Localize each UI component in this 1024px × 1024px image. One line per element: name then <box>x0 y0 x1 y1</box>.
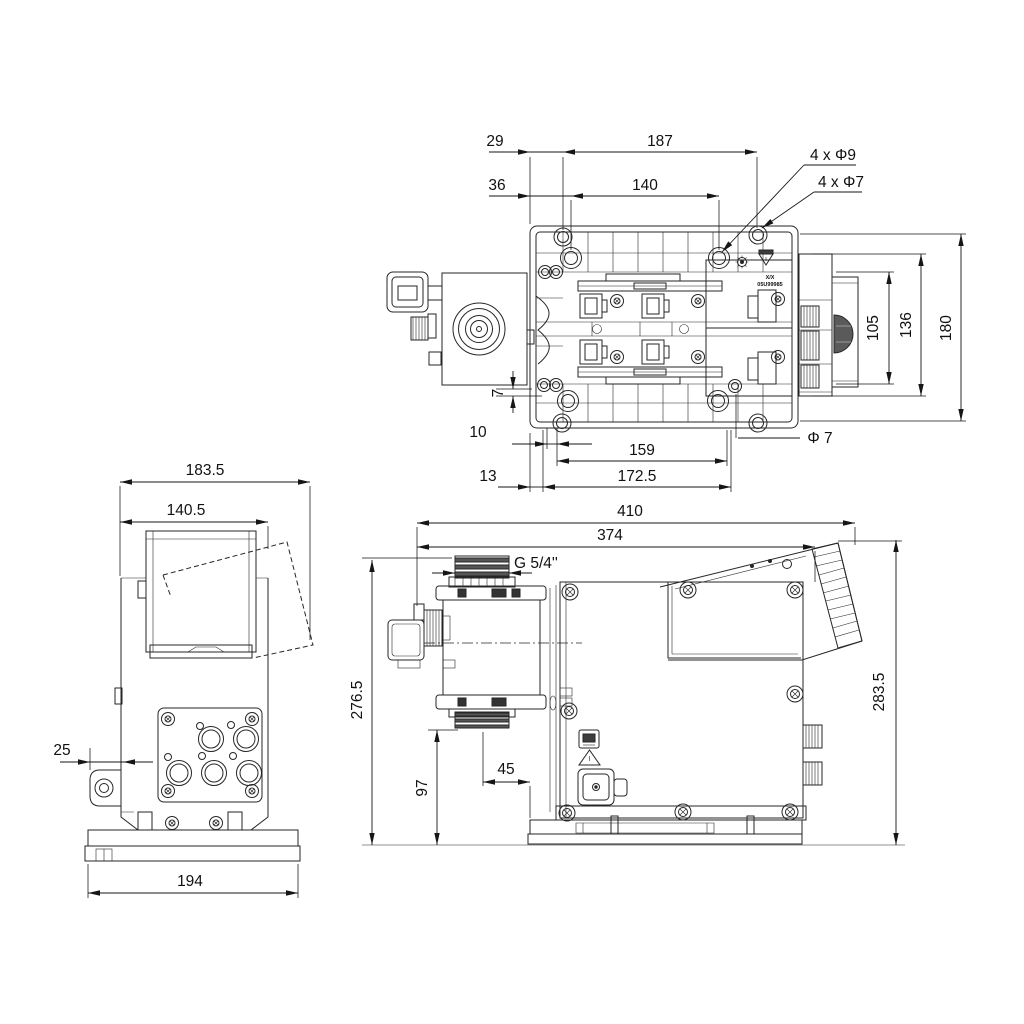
screw-icon <box>162 785 175 798</box>
dim-180: 180 <box>938 315 955 341</box>
screw-icon <box>561 703 577 719</box>
dim-283-5: 283.5 <box>871 673 888 712</box>
electrical-connector <box>578 769 627 805</box>
screw-icon <box>246 713 259 726</box>
valve-circle-top <box>453 303 505 355</box>
dim-187: 187 <box>647 133 673 150</box>
thread-size-label: G 5/4'' <box>514 555 558 572</box>
click-wheel-icon <box>834 315 853 353</box>
dim-10: 10 <box>469 424 487 441</box>
dim-374: 374 <box>597 527 623 544</box>
mounting-hole-d9 <box>561 248 582 269</box>
top-view-dimensions: 29 187 36 140 4 x Φ9 4 x Φ7 105 136 180 … <box>469 133 966 492</box>
dim-136: 136 <box>898 312 915 338</box>
screw-icon <box>210 817 223 830</box>
plate-mark: X/X <box>766 275 775 281</box>
vent-knob-top <box>411 317 428 340</box>
wall-bracket <box>90 770 134 812</box>
screw-icon <box>162 713 175 726</box>
dim-25: 25 <box>53 742 70 759</box>
cable-gland-side <box>388 604 450 668</box>
warning-label-icon <box>579 750 600 765</box>
dim-159: 159 <box>629 442 655 459</box>
label-4x-d7: 4 x Φ7 <box>818 174 864 191</box>
screw-icon <box>787 582 803 598</box>
warning-triangle-icon <box>759 250 773 265</box>
mounting-clip <box>642 340 669 364</box>
front-view-dimensions: 183.5 140.5 25 194 <box>53 462 310 898</box>
screw-icon <box>692 295 705 308</box>
socket-panel <box>158 708 262 802</box>
dim-36: 36 <box>488 177 505 194</box>
mounting-hole-d7 <box>749 226 767 244</box>
screw-icon <box>772 293 785 306</box>
control-unit-top <box>799 254 858 396</box>
dim-276-5: 276.5 <box>349 681 366 720</box>
side-view: 410 374 G 5/4'' 276.5 97 45 283.5 <box>349 503 905 845</box>
mounting-clip <box>642 294 669 318</box>
plate-mark-code: 05U99985 <box>757 282 782 288</box>
label-d7: Φ 7 <box>807 430 832 447</box>
screw-icon <box>562 584 578 600</box>
front-view: 183.5 140.5 25 194 <box>53 462 313 898</box>
dim-410: 410 <box>617 503 643 520</box>
dim-7: 7 <box>490 389 507 398</box>
slot-hole <box>538 379 551 392</box>
mounting-hole-d7 <box>749 414 767 432</box>
dim-45: 45 <box>497 761 514 778</box>
side-view-dimensions: 410 374 G 5/4'' 276.5 97 45 283.5 <box>349 503 902 845</box>
connection-socket <box>234 727 259 752</box>
connection-socket <box>237 761 262 786</box>
mounting-hole-d9 <box>709 248 730 269</box>
mounting-clip <box>580 340 607 364</box>
pump-dimensional-drawing: X/X 05U99985 <box>0 0 1024 1024</box>
base-plate-side <box>528 804 806 844</box>
mounting-hole-d9 <box>708 391 729 412</box>
dim-13: 13 <box>479 468 496 485</box>
screw-icon <box>246 785 259 798</box>
pump-head-top <box>387 272 534 385</box>
label-4x-d9: 4 x Φ9 <box>810 147 856 164</box>
screw-icon <box>787 686 803 702</box>
screw-icon <box>692 351 705 364</box>
fan-cover-front <box>146 531 256 652</box>
plate-cutout <box>536 296 549 364</box>
dim-183-5: 183.5 <box>186 462 225 479</box>
dim-97: 97 <box>414 779 431 796</box>
connection-socket <box>199 727 224 752</box>
top-view: X/X 05U99985 <box>387 133 966 492</box>
control-panel-side <box>660 543 862 660</box>
screw-icon <box>166 817 179 830</box>
tilted-panel-outline <box>163 542 313 658</box>
dim-194: 194 <box>177 873 203 890</box>
connection-socket <box>167 761 192 786</box>
mounting-hole-d9 <box>558 391 579 412</box>
screw-icon <box>611 295 624 308</box>
housing-side <box>560 582 822 818</box>
technical-drawing-page: X/X 05U99985 <box>0 0 1024 1024</box>
screw-icon <box>611 351 624 364</box>
dim-172-5: 172.5 <box>618 468 657 485</box>
gear-icon <box>736 256 749 269</box>
slot-hole <box>550 379 563 392</box>
screw-icon <box>559 805 575 821</box>
dim-105: 105 <box>865 315 882 341</box>
pump-body-front <box>85 531 313 861</box>
mounting-hole-d7 <box>553 414 571 432</box>
dim-140-5: 140.5 <box>167 502 206 519</box>
manual-label-icon <box>579 730 599 748</box>
mounting-clip <box>580 294 607 318</box>
dim-140: 140 <box>632 177 658 194</box>
dim-29: 29 <box>486 133 503 150</box>
mounting-plate: X/X 05U99985 <box>530 226 798 432</box>
slot-hole <box>729 380 742 393</box>
base-plate-front <box>85 830 300 861</box>
connection-socket <box>202 761 227 786</box>
